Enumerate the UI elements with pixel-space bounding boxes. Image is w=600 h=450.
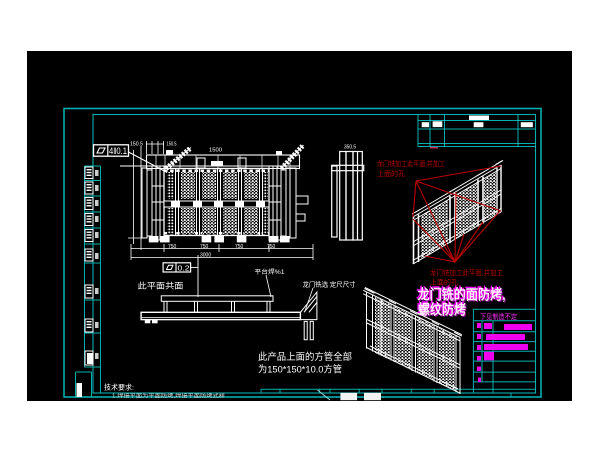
svg-text:螺纹防烤: 螺纹防烤 — [418, 302, 466, 318]
svg-text:3000: 3000 — [200, 253, 211, 259]
svg-text:平台焊%1: 平台焊%1 — [255, 268, 286, 276]
svg-text:750: 750 — [168, 244, 177, 250]
svg-text:4‖0.1: 4‖0.1 — [109, 146, 127, 156]
svg-text:350.5: 350.5 — [344, 145, 356, 151]
svg-text:技术要求:: 技术要求: — [104, 383, 134, 392]
svg-text:750: 750 — [267, 244, 276, 250]
svg-text:龙门铣加工此平面,并加工: 龙门铣加工此平面,并加工 — [377, 159, 445, 168]
svg-text:0.2: 0.2 — [178, 263, 190, 272]
svg-text:1500: 1500 — [209, 148, 222, 154]
svg-text:下见制造不定: 下见制造不定 — [480, 312, 517, 321]
svg-text:150.5: 150.5 — [167, 142, 177, 148]
svg-text:1.焊接平面为平面防烤,焊接平面防烤式样: 1.焊接平面为平面防烤,焊接平面防烤式样 — [112, 392, 225, 400]
svg-text:上面的孔: 上面的孔 — [377, 169, 405, 178]
svg-text:龙门铣选 定尺尺寸: 龙门铣选 定尺尺寸 — [303, 280, 357, 289]
svg-text:750: 750 — [235, 244, 244, 250]
svg-text:750: 750 — [200, 244, 209, 250]
svg-text:此平面共面: 此平面共面 — [138, 281, 184, 291]
svg-text:此产品上面的方管全部: 此产品上面的方管全部 — [258, 351, 352, 363]
svg-text:为150*150*10.0方管: 为150*150*10.0方管 — [258, 364, 342, 376]
svg-text:龙门铣加工此平面,并加工: 龙门铣加工此平面,并加工 — [430, 268, 503, 277]
